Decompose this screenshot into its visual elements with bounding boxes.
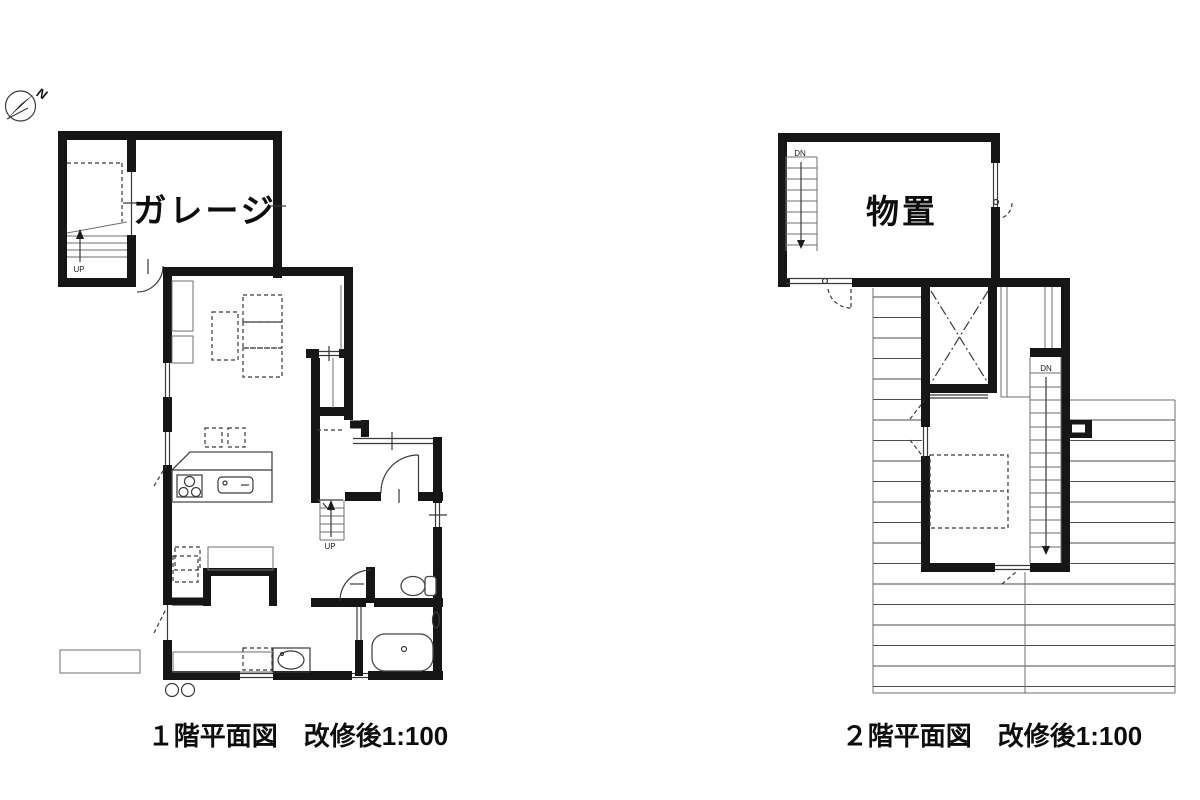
stairs-2f-down: DN: [1030, 357, 1061, 563]
washer-outline: [173, 556, 198, 582]
washbasin-fixture: [173, 648, 310, 672]
garage-stairs-up-label: UP: [73, 265, 84, 274]
floor1-caption-title: １階平面図: [148, 721, 278, 751]
kitchen-counter: [172, 428, 272, 502]
outdoor-deck: [60, 650, 140, 673]
garage-room-label: ガレージ: [133, 192, 276, 229]
storage-room-label: 物置: [866, 193, 938, 230]
floor1-caption: １階平面図改修後1:100: [128, 716, 468, 752]
entry-door: [381, 455, 419, 503]
floor1-plan: UP ガレージ: [58, 131, 447, 697]
garage-stairs-up: UP: [67, 163, 127, 274]
stairs-2f-down-label: DN: [1040, 364, 1052, 373]
floor2-caption: ２階平面図改修後1:100: [822, 716, 1162, 752]
stairs-1f-up: UP: [320, 500, 344, 551]
propane-tanks-icon: [166, 684, 195, 697]
roof-hatching: [873, 288, 1175, 693]
garage-house-door: [137, 259, 163, 292]
storage-stairs-down-label: DN: [794, 149, 806, 158]
void-area: [922, 278, 997, 398]
floor2-caption-title: ２階平面図: [842, 721, 972, 751]
toilet-fixture: [401, 577, 436, 596]
living-furniture: [172, 281, 282, 377]
floor-plan-drawing: N UP ガレージ: [0, 0, 1200, 800]
dining-furniture: [173, 547, 273, 582]
floor2-caption-scale: 改修後1:100: [998, 721, 1143, 751]
floor2-plan: DN 物置: [778, 133, 1175, 693]
floor1-caption-scale: 改修後1:100: [304, 721, 449, 751]
north-label: N: [34, 85, 50, 103]
storage-stairs-down: DN: [786, 149, 817, 251]
stairs-1f-up-label: UP: [324, 542, 335, 551]
bathtub-fixture: [372, 612, 440, 671]
north-arrow-icon: N: [6, 85, 51, 121]
